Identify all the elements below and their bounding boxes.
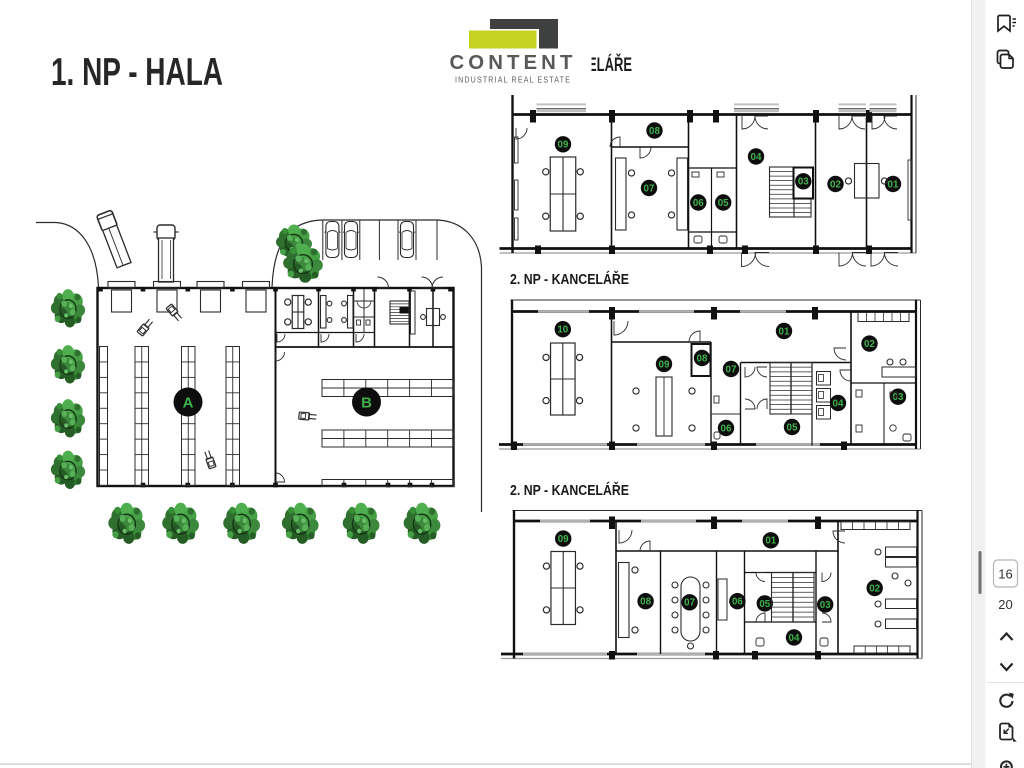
svg-text:09: 09	[558, 534, 569, 545]
svg-text:07: 07	[684, 598, 695, 609]
svg-text:2. NP - KANCELÁŘE: 2. NP - KANCELÁŘE	[510, 270, 629, 288]
svg-text:07: 07	[644, 183, 655, 194]
svg-text:05: 05	[718, 198, 729, 209]
svg-text:06: 06	[693, 198, 704, 209]
svg-text:08: 08	[649, 126, 660, 137]
svg-text:B: B	[361, 394, 372, 411]
svg-text:02: 02	[869, 583, 880, 594]
svg-text:16: 16	[998, 567, 1012, 582]
svg-text:20: 20	[998, 597, 1012, 612]
svg-text:INDUSTRIAL REAL ESTATE: INDUSTRIAL REAL ESTATE	[455, 75, 571, 85]
svg-text:04: 04	[833, 398, 844, 409]
svg-text:03: 03	[893, 392, 904, 403]
svg-text:CONTENT: CONTENT	[450, 52, 577, 74]
svg-text:06: 06	[721, 423, 732, 434]
svg-text:1. NP - HALA: 1. NP - HALA	[51, 51, 223, 94]
svg-text:03: 03	[820, 600, 831, 611]
svg-text:05: 05	[787, 422, 798, 433]
svg-text:05: 05	[759, 599, 770, 610]
svg-text:06: 06	[732, 597, 743, 608]
svg-text:09: 09	[558, 140, 569, 151]
svg-text:A: A	[183, 394, 194, 411]
svg-text:04: 04	[789, 633, 800, 644]
svg-text:ELÁŘE: ELÁŘE	[588, 54, 632, 76]
svg-text:04: 04	[751, 152, 762, 163]
svg-text:01: 01	[888, 179, 899, 190]
svg-text:01: 01	[765, 536, 776, 547]
svg-text:08: 08	[640, 597, 651, 608]
svg-text:02: 02	[830, 179, 841, 190]
svg-text:02: 02	[864, 339, 875, 350]
svg-text:2. NP - KANCELÁŘE: 2. NP - KANCELÁŘE	[510, 481, 629, 499]
svg-text:01: 01	[779, 326, 790, 337]
svg-text:10: 10	[557, 325, 568, 336]
svg-text:03: 03	[798, 177, 809, 188]
svg-text:08: 08	[697, 353, 708, 364]
svg-text:09: 09	[659, 359, 670, 370]
svg-text:07: 07	[726, 364, 737, 375]
